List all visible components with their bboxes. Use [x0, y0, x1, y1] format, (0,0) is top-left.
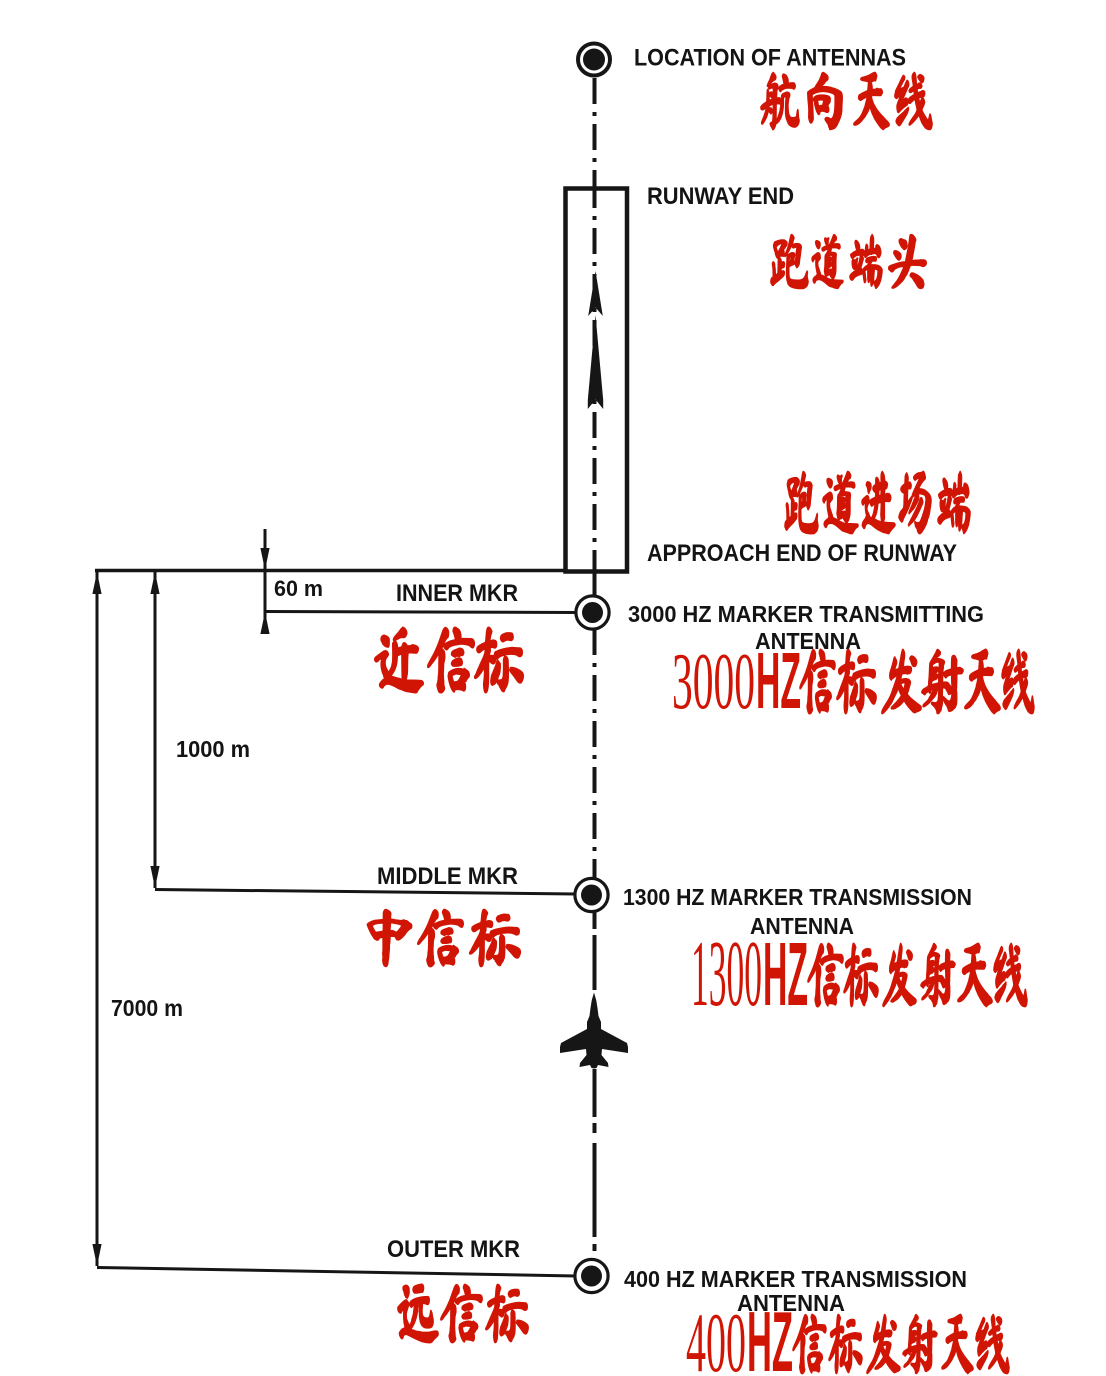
svg-text:400 HZ MARKER TRANSMISSION: 400 HZ MARKER TRANSMISSION [624, 1266, 967, 1292]
svg-text:HZ: HZ [763, 925, 808, 1025]
svg-text:APPROACH END OF RUNWAY: APPROACH END OF RUNWAY [647, 540, 957, 567]
svg-text:3000 HZ MARKER TRANSMITTING: 3000 HZ MARKER TRANSMITTING [628, 601, 984, 627]
svg-text:1300 HZ MARKER TRANSMISSION: 1300 HZ MARKER TRANSMISSION [623, 884, 972, 910]
svg-text:INNER MKR: INNER MKR [396, 580, 518, 607]
svg-text:OUTER MKR: OUTER MKR [387, 1236, 520, 1263]
svg-text:60 m: 60 m [274, 576, 323, 601]
svg-text:400: 400 [686, 1296, 746, 1376]
svg-text:1300: 1300 [691, 922, 762, 1026]
svg-text:HZ: HZ [756, 636, 801, 725]
svg-text:3000: 3000 [672, 638, 755, 726]
svg-text:HZ: HZ [747, 1295, 793, 1376]
svg-text:LOCATION OF ANTENNAS: LOCATION OF ANTENNAS [634, 45, 906, 72]
svg-text:7000 m: 7000 m [111, 995, 183, 1021]
svg-text:MIDDLE MKR: MIDDLE MKR [377, 863, 518, 890]
svg-text:RUNWAY END: RUNWAY END [647, 183, 794, 210]
svg-text:1000 m: 1000 m [176, 736, 250, 762]
